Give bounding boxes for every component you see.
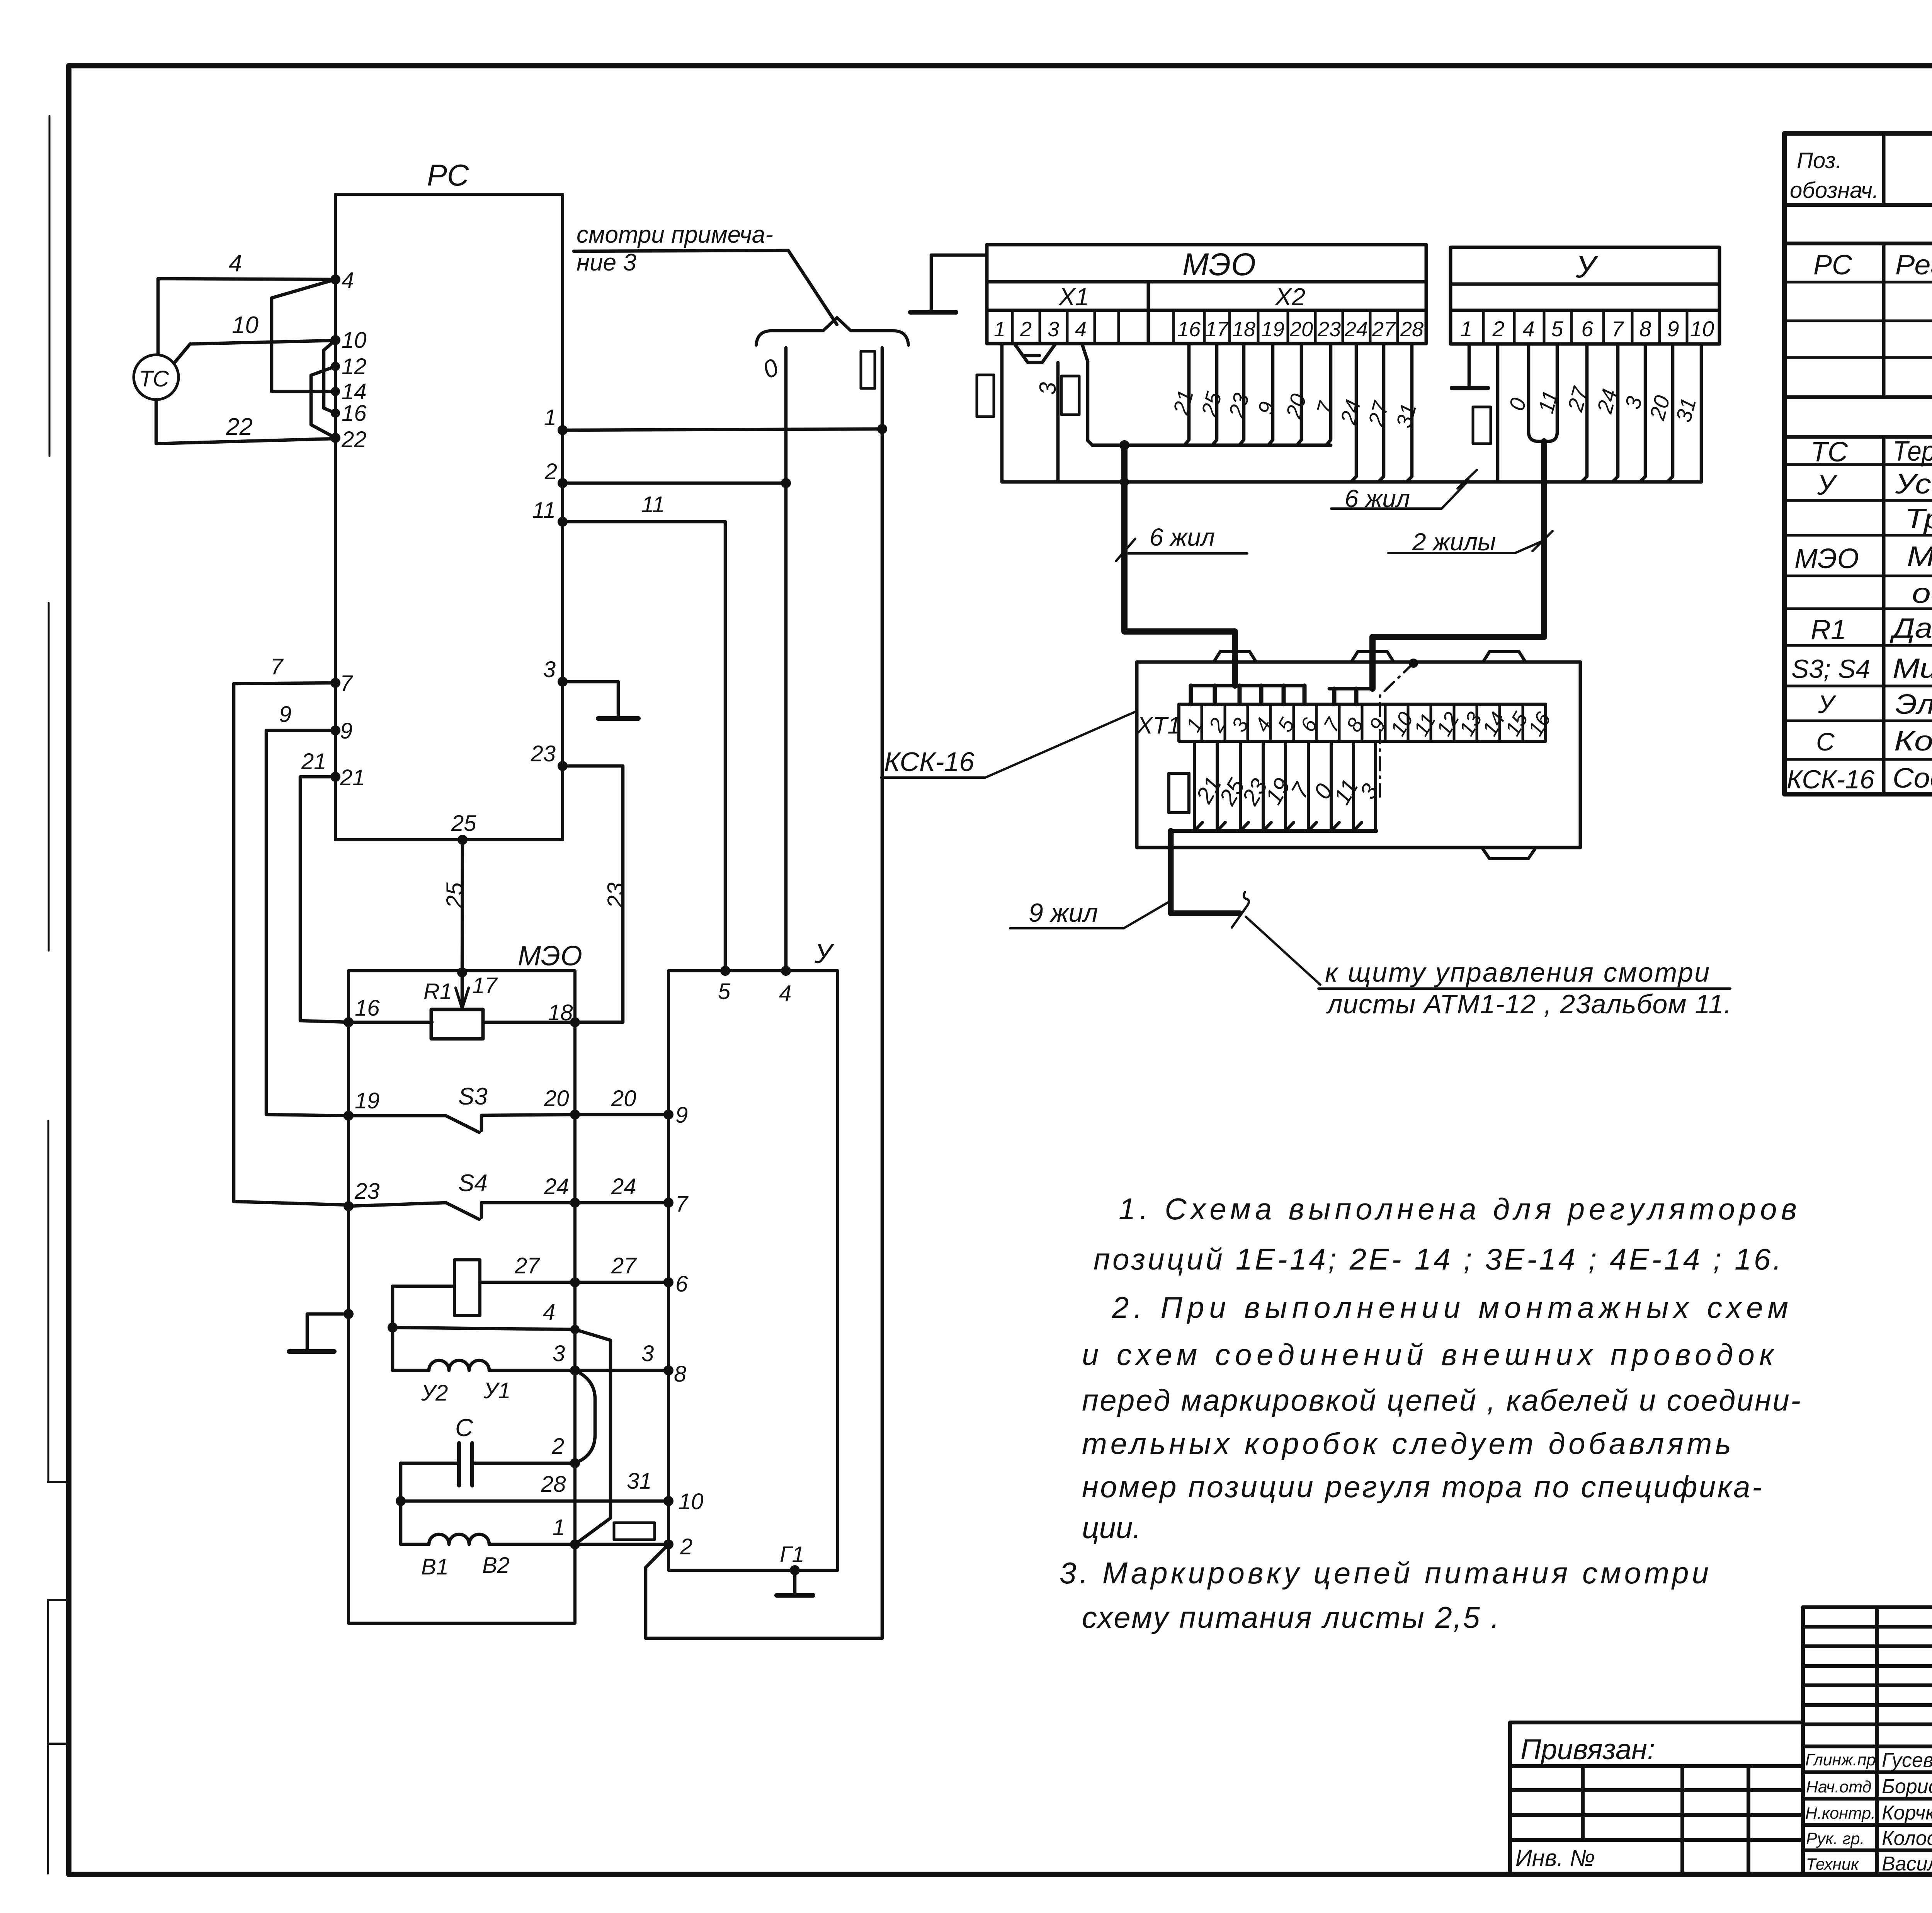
svg-text:Поз.: Поз.: [1797, 148, 1842, 173]
svg-text:9: 9: [675, 1103, 688, 1128]
svg-text:Микровыключатель: Микровыключатель: [1893, 653, 1932, 684]
svg-text:23: 23: [530, 741, 556, 766]
svg-text:4: 4: [1250, 714, 1276, 736]
svg-text:листы АТМ1-12 , 23альбом 11.: листы АТМ1-12 , 23альбом 11.: [1326, 989, 1731, 1019]
svg-text:31: 31: [1391, 401, 1421, 430]
svg-text:4: 4: [543, 1300, 555, 1325]
svg-text:23: 23: [1224, 390, 1253, 420]
svg-text:18: 18: [1232, 318, 1255, 341]
svg-text:24: 24: [1344, 318, 1368, 341]
svg-text:10: 10: [342, 328, 367, 353]
svg-text:20: 20: [1289, 318, 1313, 341]
svg-text:7: 7: [340, 671, 354, 696]
svg-text:9: 9: [340, 718, 352, 744]
svg-text:Конденсатор: Конденсатор: [1894, 726, 1932, 757]
svg-text:3: 3: [1355, 779, 1384, 803]
svg-text:7: 7: [1312, 398, 1338, 417]
svg-text:1: 1: [544, 405, 556, 430]
svg-text:6: 6: [675, 1271, 688, 1297]
svg-text:МЭО: МЭО: [518, 941, 582, 972]
svg-text:2 жилы: 2 жилы: [1412, 528, 1496, 556]
svg-text:Регулирующий прибор РС 29.2.: Регулирующий прибор РС 29.2. 32: [1895, 250, 1932, 281]
svg-text:10: 10: [1690, 317, 1714, 341]
svg-text:4: 4: [1522, 317, 1534, 341]
svg-text:S3; S4: S3; S4: [1791, 654, 1870, 684]
svg-text:0: 0: [759, 353, 783, 384]
svg-text:Трехпозиционный У29 . 3: Трехпозиционный У29 . 3: [1905, 504, 1932, 534]
svg-text:24: 24: [1335, 397, 1365, 427]
svg-text:Техник: Техник: [1806, 1855, 1859, 1874]
svg-text:12: 12: [342, 354, 367, 379]
svg-text:21: 21: [340, 765, 365, 790]
svg-text:R1: R1: [1811, 614, 1846, 645]
svg-text:2: 2: [544, 459, 557, 484]
svg-text:19: 19: [355, 1088, 380, 1113]
svg-text:Нач.отд: Нач.отд: [1806, 1778, 1871, 1796]
svg-text:9: 9: [1667, 317, 1679, 341]
svg-text:8: 8: [674, 1362, 686, 1387]
svg-text:3: 3: [1227, 714, 1253, 736]
svg-text:16: 16: [355, 996, 380, 1021]
svg-text:X1: X1: [1058, 283, 1089, 311]
svg-text:7: 7: [1319, 713, 1345, 736]
svg-text:схему питания листы 2,5 .: схему питания листы 2,5 .: [1082, 1600, 1499, 1634]
svg-text:2: 2: [1204, 714, 1230, 736]
svg-text:6: 6: [1581, 317, 1594, 341]
svg-text:8: 8: [1639, 317, 1651, 341]
svg-text:16: 16: [342, 401, 367, 426]
svg-text:3. Маркировку цепей питания: 3. Маркировку цепей питания смотри: [1060, 1556, 1709, 1590]
svg-text:Датчик реостатный: Датчик реостатный: [1889, 613, 1932, 644]
svg-text:6 жил: 6 жил: [1150, 523, 1215, 551]
svg-text:11: 11: [532, 498, 556, 523]
svg-text:5: 5: [718, 979, 731, 1004]
svg-text:17: 17: [472, 973, 498, 998]
svg-text:У: У: [814, 938, 835, 969]
svg-text:Колосова: Колосова: [1882, 1827, 1932, 1850]
svg-text:PC: PC: [427, 158, 469, 192]
svg-text:номер позиции регуля тора: номер позиции регуля тора по специфика-: [1082, 1470, 1762, 1504]
svg-text:7: 7: [1611, 317, 1624, 341]
svg-text:У: У: [1818, 690, 1837, 718]
svg-text:Соединительная коробка КСК: Соединительная коробка КСК-16: [1893, 763, 1932, 794]
svg-text:ТС: ТС: [1811, 437, 1848, 468]
svg-text:Привязан:: Привязан:: [1520, 1733, 1655, 1765]
svg-text:1: 1: [994, 318, 1005, 341]
svg-text:10: 10: [232, 312, 259, 339]
svg-text:Рук. гр.: Рук. гр.: [1806, 1830, 1864, 1848]
svg-text:В1: В1: [421, 1554, 449, 1579]
svg-text:Инв. №: Инв. №: [1515, 1845, 1595, 1871]
svg-text:Гусева: Гусева: [1882, 1749, 1932, 1772]
svg-text:28: 28: [1400, 318, 1423, 341]
svg-text:5: 5: [1551, 317, 1563, 341]
svg-text:9: 9: [279, 702, 291, 727]
svg-text:20: 20: [1645, 393, 1674, 422]
svg-text:2: 2: [1020, 318, 1032, 341]
svg-text:20: 20: [1281, 391, 1311, 421]
svg-text:25: 25: [451, 811, 476, 836]
svg-text:3: 3: [1035, 382, 1061, 395]
svg-text:У1: У1: [483, 1378, 510, 1403]
svg-text:27: 27: [1363, 398, 1393, 429]
svg-text:ние 3: ние 3: [577, 249, 636, 276]
svg-text:3: 3: [553, 1341, 565, 1366]
svg-text:27: 27: [1372, 318, 1396, 341]
svg-text:и схем соединений внешних: и схем соединений внешних проводок: [1082, 1338, 1775, 1372]
svg-text:R1: R1: [423, 979, 452, 1004]
svg-text:4: 4: [779, 981, 791, 1006]
svg-text:7: 7: [270, 654, 284, 679]
svg-text:27: 27: [611, 1253, 637, 1278]
svg-text:23: 23: [1317, 318, 1341, 341]
svg-text:S4: S4: [458, 1170, 488, 1196]
svg-text:21: 21: [1168, 387, 1198, 417]
svg-text:РС: РС: [1813, 250, 1852, 281]
svg-text:25: 25: [442, 882, 468, 909]
svg-text:1. Схема выполнена для рег: 1. Схема выполнена для регуляторов: [1119, 1192, 1797, 1226]
svg-text:2: 2: [680, 1534, 692, 1559]
svg-text:16: 16: [1524, 708, 1555, 740]
svg-text:1: 1: [553, 1515, 565, 1540]
svg-text:3: 3: [1620, 394, 1647, 412]
svg-text:к щиту управления смотри: к щиту управления смотри: [1325, 957, 1709, 987]
svg-text:22: 22: [226, 414, 253, 440]
svg-text:тельных коробок следует: тельных коробок следует добавлять: [1082, 1426, 1731, 1460]
svg-text:5: 5: [1273, 714, 1299, 736]
svg-text:9: 9: [1365, 714, 1391, 736]
svg-text:17: 17: [1205, 318, 1229, 341]
svg-text:TC: TC: [139, 366, 169, 391]
svg-text:3: 3: [1048, 318, 1059, 341]
svg-text:0: 0: [1504, 395, 1531, 413]
svg-text:однооборотный МЭО: однооборотный МЭО: [1912, 578, 1932, 609]
svg-text:Г1: Г1: [780, 1542, 804, 1567]
svg-text:Электромагнит: Электромагнит: [1895, 689, 1932, 720]
svg-text:25: 25: [1196, 389, 1226, 419]
svg-text:КСК-16: КСК-16: [884, 747, 975, 777]
svg-text:4: 4: [229, 250, 242, 277]
svg-text:4: 4: [342, 268, 354, 293]
svg-text:9: 9: [1253, 399, 1280, 417]
svg-text:Н.контр.: Н.контр.: [1805, 1804, 1876, 1823]
svg-text:1: 1: [1182, 714, 1207, 736]
svg-text:31: 31: [1671, 395, 1701, 424]
svg-text:21: 21: [301, 749, 327, 774]
svg-text:24: 24: [544, 1174, 569, 1199]
svg-text:XT1: XT1: [1136, 712, 1181, 739]
svg-text:20: 20: [544, 1086, 569, 1111]
svg-text:Корчкова: Корчкова: [1882, 1802, 1932, 1824]
svg-text:7: 7: [675, 1191, 689, 1217]
svg-text:22: 22: [341, 427, 367, 452]
svg-text:Васильева: Васильева: [1882, 1853, 1932, 1875]
svg-text:24: 24: [611, 1174, 636, 1199]
svg-text:19: 19: [1261, 318, 1284, 341]
svg-text:КСК-16: КСК-16: [1787, 765, 1874, 794]
svg-text:У: У: [1575, 249, 1599, 284]
svg-text:перед маркировкой цепей , каб: перед маркировкой цепей , кабелей и соед…: [1082, 1383, 1801, 1417]
svg-text:2. При выполнении монтажных: 2. При выполнении монтажных схем: [1112, 1290, 1788, 1324]
svg-text:1: 1: [1460, 317, 1472, 341]
svg-text:обознач.: обознач.: [1790, 178, 1879, 203]
svg-text:16: 16: [1177, 318, 1201, 341]
svg-text:11: 11: [641, 492, 665, 517]
svg-text:S3: S3: [458, 1083, 488, 1110]
svg-text:9 жил: 9 жил: [1029, 898, 1098, 928]
svg-text:Механизм электрический: Механизм электрический: [1907, 541, 1932, 572]
svg-text:18: 18: [548, 1000, 573, 1025]
svg-text:Усилитель мощности: Усилитель мощности: [1895, 469, 1932, 500]
svg-text:Борисов: Борисов: [1882, 1775, 1932, 1798]
svg-text:ции.: ции.: [1082, 1511, 1141, 1545]
svg-text:МЭО: МЭО: [1794, 543, 1859, 574]
svg-text:У: У: [1817, 470, 1837, 501]
svg-text:позиций 1Е-14; 2Е- 14 ; 3Е-1: позиций 1Е-14; 2Е- 14 ; 3Е-14 ; 4Е-14 ; …: [1094, 1242, 1781, 1276]
svg-text:X2: X2: [1274, 283, 1305, 311]
svg-text:6: 6: [1296, 714, 1322, 736]
svg-text:В2: В2: [482, 1553, 510, 1578]
svg-text:C: C: [455, 1414, 473, 1442]
svg-text:МЭО: МЭО: [1182, 247, 1256, 282]
svg-text:2: 2: [1492, 317, 1504, 341]
svg-text:28: 28: [541, 1472, 566, 1497]
svg-text:4: 4: [1075, 318, 1087, 341]
svg-text:20: 20: [611, 1086, 636, 1111]
svg-text:8: 8: [1342, 714, 1368, 736]
svg-text:23: 23: [354, 1179, 380, 1204]
svg-text:С: С: [1816, 727, 1835, 756]
svg-text:смотри примеча-: смотри примеча-: [577, 221, 773, 248]
svg-text:Термопреобразователь сопротив: Термопреобразователь сопротивления: [1893, 436, 1932, 467]
svg-text:27: 27: [514, 1253, 541, 1278]
svg-text:23: 23: [603, 882, 629, 909]
svg-text:3: 3: [641, 1341, 654, 1366]
svg-text:У2: У2: [421, 1380, 448, 1406]
svg-text:2: 2: [551, 1434, 564, 1459]
svg-text:10: 10: [679, 1489, 704, 1514]
svg-text:Глинж.пр.: Глинж.пр.: [1805, 1751, 1880, 1769]
svg-text:3: 3: [543, 657, 556, 682]
svg-text:31: 31: [627, 1469, 652, 1494]
